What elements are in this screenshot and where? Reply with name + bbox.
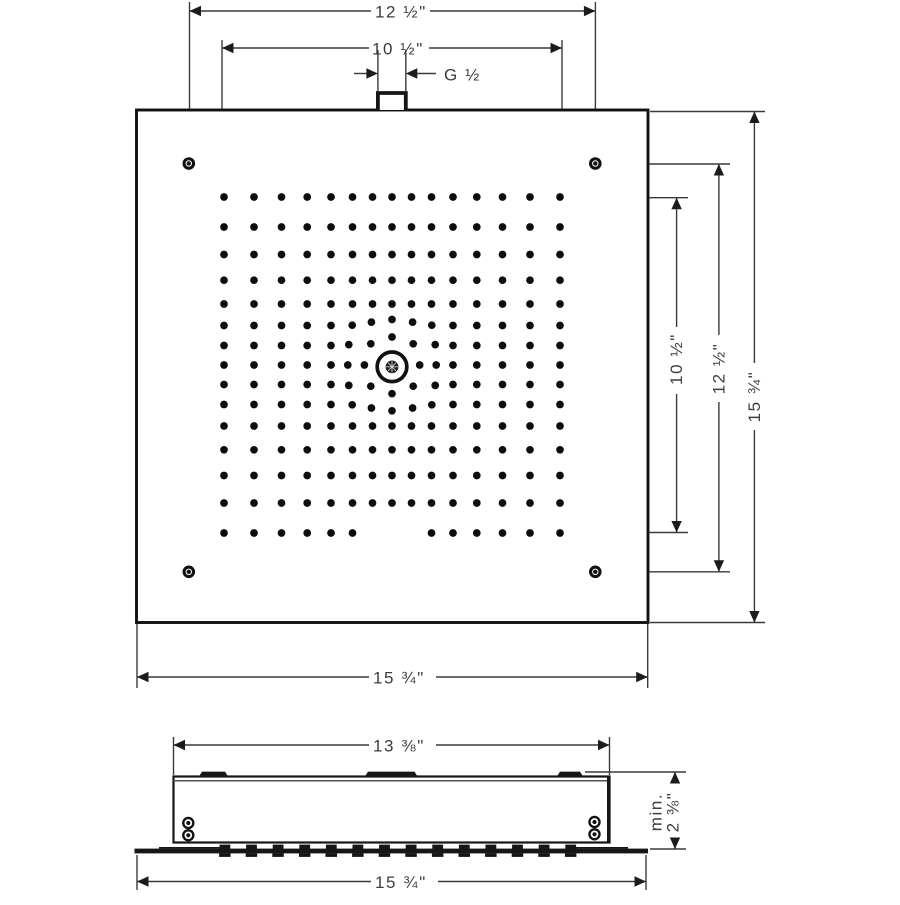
svg-text:15 ¾": 15 ¾" — [375, 873, 427, 892]
svg-text:13 ⅜": 13 ⅜" — [373, 737, 425, 756]
svg-text:2 ⅜": 2 ⅜" — [664, 792, 683, 833]
svg-text:10 ½": 10 ½" — [667, 333, 686, 385]
svg-text:10 ½": 10 ½" — [372, 40, 424, 59]
svg-text:12 ½": 12 ½" — [709, 343, 728, 395]
svg-text:15 ¾": 15 ¾" — [373, 669, 425, 688]
svg-text:12 ½": 12 ½" — [375, 3, 427, 22]
svg-text:G ½: G ½ — [444, 66, 481, 85]
svg-text:15 ¾": 15 ¾" — [745, 371, 764, 423]
